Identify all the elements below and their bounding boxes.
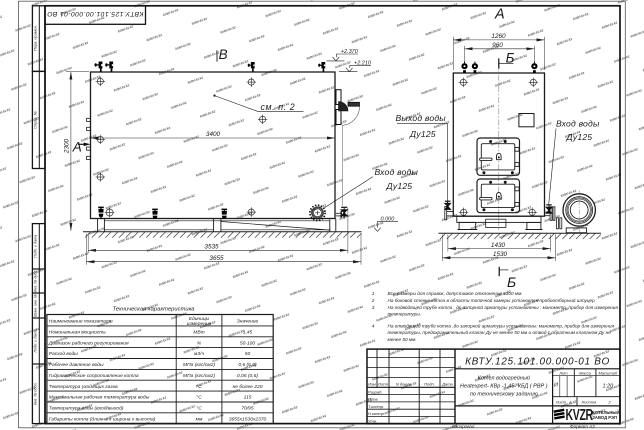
svg-text:Б: Б xyxy=(507,274,516,290)
svg-text:В: В xyxy=(219,47,228,62)
svg-text:м3/ч: м3/ч xyxy=(194,351,204,357)
svg-text:Ду125: Ду125 xyxy=(386,181,413,191)
svg-text:Максимальная рабочая температу: Максимальная рабочая температура воды xyxy=(49,395,150,401)
svg-text:Номинальная мощность: Номинальная мощность xyxy=(49,329,107,335)
svg-text:°С: °С xyxy=(196,384,202,390)
svg-text:Формат А3: Формат А3 xyxy=(570,424,595,429)
svg-text:Вход воды: Вход воды xyxy=(556,119,600,129)
svg-text:не более 220: не более 220 xyxy=(233,384,263,390)
svg-text:Подп. и дата: Подп. и дата xyxy=(34,329,38,352)
svg-text:Лит: Лит xyxy=(558,370,568,375)
svg-text:А: А xyxy=(494,7,505,23)
svg-text:50: 50 xyxy=(245,351,251,357)
svg-text:На подводящей трубе котла ,: На подводящей трубе котла , до запорной … xyxy=(388,304,619,310)
svg-text:115: 115 xyxy=(244,395,252,401)
svg-text:Ду125: Ду125 xyxy=(409,129,436,139)
svg-text:Пров.: Пров. xyxy=(368,397,379,402)
svg-text:Взам. инв. №: Взам. инв. № xyxy=(34,294,38,317)
svg-text:Диапазон рабочего регулировани: Диапазон рабочего регулирования xyxy=(48,340,129,346)
svg-text:Лист: Лист xyxy=(555,400,567,405)
svg-text:1260: 1260 xyxy=(491,33,506,40)
svg-text:Heatexpert- КВр -1,45- КБД ( Р: Heatexpert- КВр -1,45- КБД ( РВР ) xyxy=(460,384,548,390)
svg-text:1: 1 xyxy=(570,400,572,405)
svg-text:0.000: 0.000 xyxy=(381,216,396,222)
svg-text:Перв. примен.: Перв. примен. xyxy=(33,25,38,51)
svg-text:КВТУ.125.101.00.000-01 ВО: КВТУ.125.101.00.000-01 ВО xyxy=(465,356,610,367)
svg-text:Котел водогрейный: Котел водогрейный xyxy=(478,374,530,381)
svg-text:мм: мм xyxy=(196,417,203,422)
svg-text:Выход воды: Выход воды xyxy=(396,113,447,123)
svg-text:+2.210: +2.210 xyxy=(354,61,372,67)
svg-text:Расход воды: Расход воды xyxy=(49,351,78,357)
svg-text:70/95: 70/95 xyxy=(241,406,254,412)
svg-text:Инв. № дубл.: Инв. № дубл. xyxy=(34,270,38,293)
svg-text:Температура уходящих газов: Температура уходящих газов xyxy=(49,384,118,390)
svg-text:Все размеры для справок, допус: Все размеры для справок, допустимое откл… xyxy=(388,291,523,296)
svg-text:Дата: Дата xyxy=(441,381,453,386)
svg-text:Т.контр.: Т.контр. xyxy=(368,404,384,409)
svg-text:На отводящей трубе котла ,до з: На отводящей трубе котла ,до запорной ар… xyxy=(388,323,615,329)
svg-text:Утв.: Утв. xyxy=(368,419,377,424)
svg-text:Справ. №: Справ. № xyxy=(33,110,38,128)
svg-text:Лист: Лист xyxy=(377,381,389,386)
svg-text:Б: Б xyxy=(506,50,515,65)
svg-text:И: И xyxy=(554,383,558,389)
svg-text:2: 2 xyxy=(371,298,375,303)
svg-text:менее 50 мм.: менее 50 мм. xyxy=(388,337,417,342)
svg-text:по техническому заданию: по техническому заданию xyxy=(470,392,538,398)
svg-text:А: А xyxy=(72,140,82,155)
svg-text:50-100: 50-100 xyxy=(240,340,256,346)
svg-text:Изм: Изм xyxy=(368,381,376,386)
svg-text:3655х1530х2370: 3655х1530х2370 xyxy=(229,416,267,422)
svg-text:1: 1 xyxy=(372,291,375,296)
svg-text:Подп.: Подп. xyxy=(424,381,435,386)
svg-text:+2.370: +2.370 xyxy=(341,49,359,55)
svg-text:Значение: Значение xyxy=(237,318,259,324)
svg-text:Габариты котла (длинна х ширин: Габариты котла (длинна х ширина х высота… xyxy=(49,416,156,422)
svg-text:Масса: Масса xyxy=(579,370,592,375)
svg-text:измерения: измерения xyxy=(187,322,212,327)
svg-text:см. п. 2: см. п. 2 xyxy=(261,102,296,112)
svg-text:Подп. и дата: Подп. и дата xyxy=(34,235,38,258)
svg-text:ЗАВОД РЭП: ЗАВОД РЭП xyxy=(592,415,617,420)
svg-text:KVZR: KVZR xyxy=(566,406,594,424)
svg-text:Ду125: Ду125 xyxy=(566,132,593,142)
svg-text:%: % xyxy=(197,340,202,346)
svg-text:На боковой стенке котла в обла: На боковой стенке котла в области топочн… xyxy=(388,297,596,303)
svg-text:1530: 1530 xyxy=(493,251,508,258)
svg-text:Н.контр.: Н.контр. xyxy=(368,411,385,416)
svg-text:1,45: 1,45 xyxy=(243,329,253,335)
svg-text:Листов: Листов xyxy=(581,400,597,405)
svg-text:N докум.: N докум. xyxy=(396,381,412,386)
svg-text:0,06 (0,6): 0,06 (0,6) xyxy=(237,373,258,379)
svg-text:0,6 (6,0): 0,6 (6,0) xyxy=(238,362,257,368)
svg-text:Разраб.: Разраб. xyxy=(368,389,382,394)
svg-text:3655: 3655 xyxy=(209,255,224,262)
svg-text:Вход воды: Вход воды xyxy=(375,167,419,177)
svg-text:Гидравлическое сопротивление к: Гидравлическое сопротивление котла xyxy=(49,373,139,379)
svg-text:МПа (кгс/см2): МПа (кгс/см2) xyxy=(183,362,215,368)
svg-text:1:20: 1:20 xyxy=(602,384,614,390)
svg-text:температуры.: температуры. xyxy=(388,312,422,317)
svg-text:Масштаб: Масштаб xyxy=(598,370,617,375)
svg-text:МВт: МВт xyxy=(193,329,204,335)
svg-text:3535: 3535 xyxy=(204,244,219,251)
svg-text:3: 3 xyxy=(372,305,375,310)
svg-text:3400: 3400 xyxy=(206,131,221,138)
svg-text:1430: 1430 xyxy=(491,242,506,249)
svg-text:Температура воды (вход/выход): Температура воды (вход/выход) xyxy=(49,406,124,412)
svg-text:Техническая характеристика: Техническая характеристика xyxy=(112,307,195,313)
svg-text:Рабочее давление воды: Рабочее давление воды xyxy=(49,362,104,368)
svg-text:Инв. № подл.: Инв. № подл. xyxy=(34,382,38,405)
svg-text:2300: 2300 xyxy=(63,138,70,154)
svg-text:4: 4 xyxy=(372,324,375,329)
svg-text:Копировал: Копировал xyxy=(452,424,475,429)
svg-text:МПа (кгс/см2): МПа (кгс/см2) xyxy=(183,373,215,379)
svg-text:°С: °С xyxy=(196,406,202,412)
svg-text:960: 960 xyxy=(492,42,503,49)
svg-text:°С: °С xyxy=(196,395,202,401)
svg-text:Наименование показателя: Наименование показателя xyxy=(49,318,112,324)
svg-text:температуры, предохранительный: температуры, предохранительный клапан Ду… xyxy=(388,329,612,335)
svg-text:КВТУ.125.101.00.000-01 ВО: КВТУ.125.101.00.000-01 ВО xyxy=(47,10,144,17)
